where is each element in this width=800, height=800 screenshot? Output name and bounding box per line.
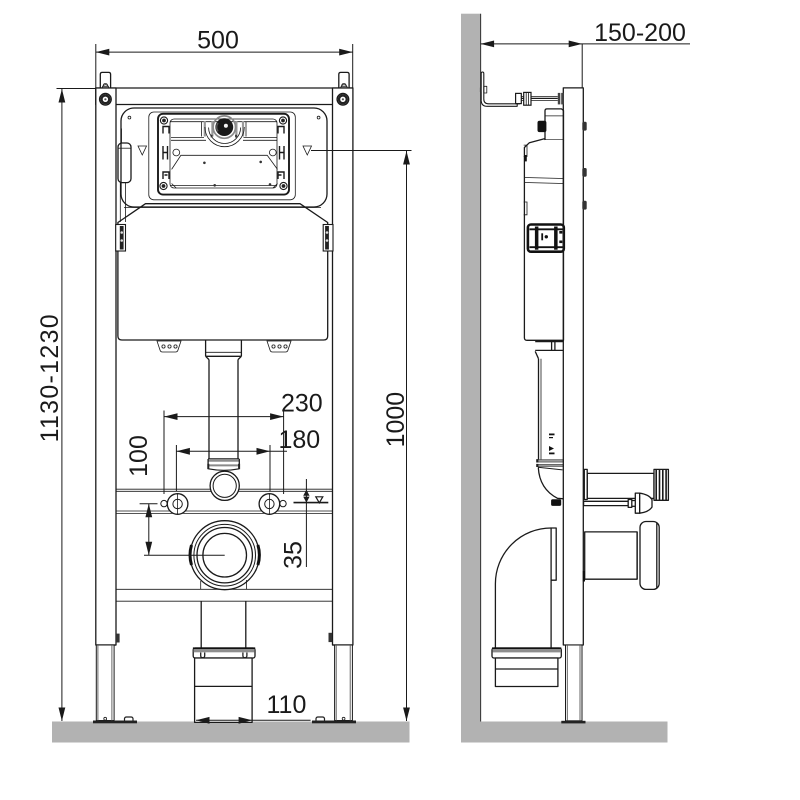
svg-text:1000: 1000 xyxy=(382,392,410,448)
svg-text:500: 500 xyxy=(197,27,239,55)
svg-text:230: 230 xyxy=(281,390,323,418)
svg-text:110: 110 xyxy=(267,691,307,719)
svg-text:1130-1230: 1130-1230 xyxy=(36,313,64,442)
svg-text:180: 180 xyxy=(279,426,321,454)
svg-text:100: 100 xyxy=(125,435,153,477)
svg-text:150-200: 150-200 xyxy=(594,19,686,47)
svg-text:35: 35 xyxy=(280,541,308,569)
